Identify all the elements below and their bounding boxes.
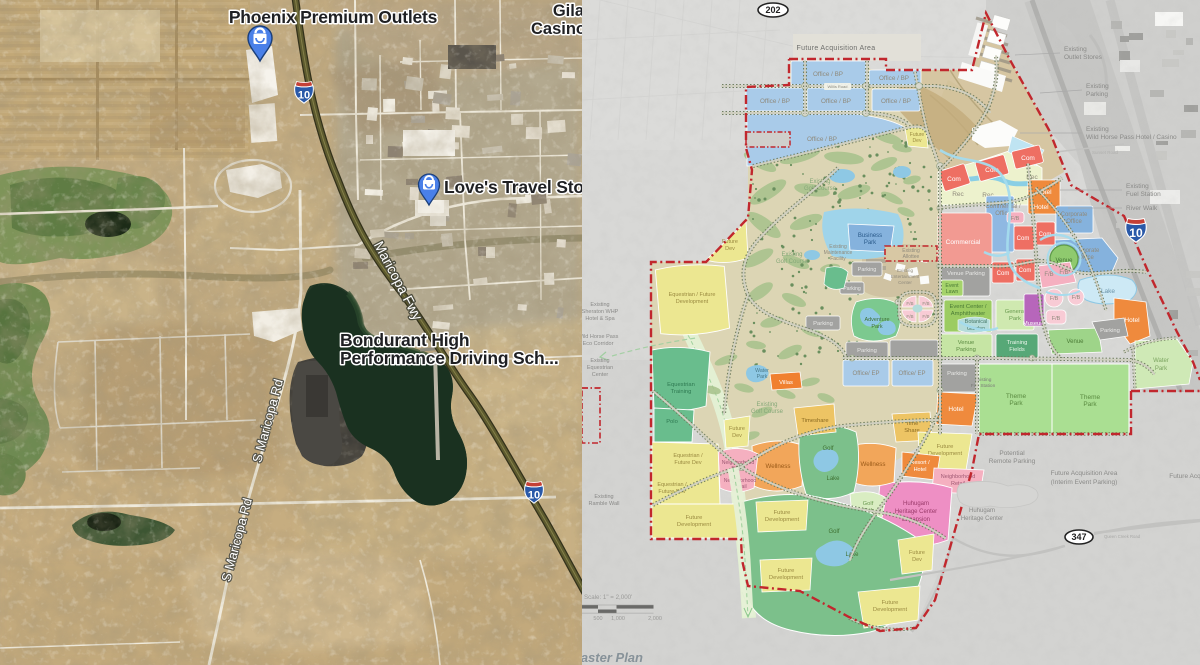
svg-text:Outlet Stores: Outlet Stores — [1064, 54, 1103, 61]
svg-text:Amphitheater: Amphitheater — [951, 311, 986, 317]
svg-text:Park: Park — [1083, 401, 1097, 408]
svg-text:Timeshare: Timeshare — [801, 418, 828, 424]
svg-text:Future: Future — [774, 510, 791, 516]
svg-text:Future: Future — [729, 426, 745, 432]
svg-text:Com: Com — [1021, 155, 1035, 162]
svg-text:Event Center /: Event Center / — [949, 304, 986, 310]
svg-text:Botanical: Botanical — [965, 319, 988, 325]
svg-text:Golf Course: Golf Course — [804, 186, 837, 192]
svg-text:Com: Com — [1017, 236, 1030, 242]
svg-text:Park: Park — [1155, 366, 1168, 372]
svg-text:1,000: 1,000 — [611, 616, 625, 622]
svg-text:General: General — [1005, 309, 1026, 315]
svg-text:Facility: Facility — [830, 256, 846, 262]
svg-text:Center: Center — [898, 280, 912, 285]
svg-text:F/B: F/B — [1044, 272, 1053, 278]
svg-text:Phoenix Premium Outlets: Phoenix Premium Outlets — [229, 7, 438, 27]
svg-text:Com: Com — [947, 176, 961, 183]
svg-text:Scale: 1" = 2,000': Scale: 1" = 2,000' — [584, 594, 632, 601]
svg-text:Huhugam: Huhugam — [969, 508, 995, 514]
svg-text:Existing: Existing — [590, 302, 609, 308]
svg-text:Future: Future — [909, 550, 925, 556]
svg-text:Training: Training — [1007, 340, 1028, 346]
svg-text:Hotel: Hotel — [948, 406, 964, 413]
svg-text:Golf Course: Golf Course — [751, 409, 784, 415]
svg-text:F/B: F/B — [906, 314, 913, 319]
svg-text:Dev: Dev — [913, 138, 922, 144]
svg-text:Office / BP: Office / BP — [813, 71, 843, 78]
svg-text:Performance Driving Sch...: Performance Driving Sch... — [340, 348, 558, 368]
svg-text:Golf Course: Golf Course — [776, 259, 809, 265]
svg-text:Casino: Casino — [531, 20, 586, 38]
svg-text:Park: Park — [1009, 400, 1023, 407]
svg-text:Park: Park — [864, 240, 877, 246]
svg-text:2,000: 2,000 — [648, 616, 662, 622]
svg-text:Lake: Lake — [826, 476, 840, 482]
svg-text:Parking: Parking — [956, 347, 976, 353]
svg-text:Development: Development — [765, 517, 800, 523]
svg-text:Venue Parking: Venue Parking — [947, 271, 985, 277]
svg-text:(Interim Event Parking): (Interim Event Parking) — [1051, 479, 1117, 486]
svg-text:Parking: Parking — [858, 267, 877, 273]
svg-text:F/B: F/B — [922, 301, 929, 306]
svg-text:Adventure: Adventure — [864, 317, 889, 323]
svg-text:Heritage Center: Heritage Center — [961, 516, 1003, 522]
svg-text:F/B: F/B — [906, 301, 913, 306]
svg-text:Ramble Wall: Ramble Wall — [589, 501, 620, 507]
svg-text:Future Acquisition Area: Future Acquisition Area — [1051, 470, 1118, 477]
svg-text:Future Acq: Future Acq — [1169, 473, 1200, 480]
svg-text:Parking: Parking — [857, 348, 877, 354]
svg-text:500: 500 — [593, 616, 602, 622]
svg-text:Development: Development — [873, 607, 908, 613]
svg-text:Hotel: Hotel — [1033, 204, 1049, 211]
svg-text:Wild Horse Pass Hotel / Casino: Wild Horse Pass Hotel / Casino — [1086, 134, 1177, 141]
svg-text:Future: Future — [686, 515, 703, 521]
svg-text:Equestrian / Future: Equestrian / Future — [669, 292, 716, 298]
svg-text:Office / BP: Office / BP — [879, 75, 909, 82]
svg-text:Office/ EP: Office/ EP — [853, 371, 880, 377]
svg-text:Center: Center — [592, 372, 609, 378]
svg-text:Fields: Fields — [1009, 347, 1025, 353]
svg-text:Bondurant High: Bondurant High — [340, 330, 469, 350]
svg-text:Venue: Venue — [1066, 339, 1084, 345]
svg-text:Golf: Golf — [822, 446, 833, 452]
svg-text:Corporate: Corporate — [1061, 212, 1088, 218]
svg-text:Sheraton WHP: Sheraton WHP — [582, 309, 619, 315]
svg-text:Equestrian /: Equestrian / — [673, 453, 703, 459]
svg-text:Existing: Existing — [1086, 83, 1109, 90]
svg-text:River Walk: River Walk — [1126, 205, 1158, 212]
svg-text:Gila: Gila — [553, 2, 585, 20]
svg-text:Allottee: Allottee — [903, 254, 920, 260]
svg-text:Willis Road: Willis Road — [827, 84, 847, 89]
svg-text:Dev: Dev — [912, 557, 922, 563]
svg-text:Future Acquisition Area: Future Acquisition Area — [797, 45, 876, 52]
svg-text:Potential: Potential — [999, 450, 1025, 457]
svg-text:Hotel: Hotel — [1124, 317, 1140, 324]
svg-text:Existing: Existing — [594, 494, 613, 500]
svg-text:Theme: Theme — [1080, 394, 1101, 401]
svg-text:Office: Office — [1066, 219, 1082, 225]
svg-text:Lake: Lake — [1101, 288, 1115, 295]
svg-text:Existing: Existing — [756, 402, 777, 408]
svg-text:Future: Future — [882, 600, 899, 606]
svg-text:Parking: Parking — [813, 321, 833, 327]
svg-text:F/B: F/B — [1072, 295, 1081, 301]
svg-text:Office/ EP: Office/ EP — [899, 371, 926, 377]
svg-text:202: 202 — [765, 5, 780, 15]
svg-text:Wellness: Wellness — [861, 461, 886, 468]
svg-text:Love's Travel Stop: Love's Travel Stop — [444, 177, 594, 197]
svg-text:Office / BP: Office / BP — [881, 98, 911, 105]
svg-text:Water: Water — [1153, 358, 1169, 364]
svg-text:10: 10 — [298, 89, 310, 101]
svg-text:Future: Future — [778, 568, 795, 574]
svg-text:Parking: Parking — [947, 371, 967, 377]
svg-text:Com: Com — [997, 271, 1010, 277]
svg-text:Parking: Parking — [1100, 328, 1120, 334]
svg-text:Parking: Parking — [843, 286, 861, 292]
svg-text:Wild Horse Pass: Wild Horse Pass — [578, 334, 619, 340]
svg-text:F/B: F/B — [1011, 216, 1020, 222]
svg-text:Business: Business — [858, 233, 882, 239]
svg-text:Equestrian: Equestrian — [667, 382, 695, 388]
svg-text:Future: Future — [937, 444, 954, 450]
svg-text:Theme: Theme — [1006, 393, 1027, 400]
svg-text:Development: Development — [676, 299, 709, 305]
svg-text:Hotel: Hotel — [914, 467, 927, 473]
svg-text:Office / BP: Office / BP — [807, 136, 837, 143]
svg-text:Park: Park — [1009, 316, 1021, 322]
svg-text:Fire Station: Fire Station — [971, 383, 996, 389]
svg-text:Park: Park — [757, 374, 768, 380]
svg-text:Commercial: Commercial — [946, 239, 981, 246]
svg-text:Existing: Existing — [1086, 126, 1109, 133]
svg-text:Parking: Parking — [1086, 91, 1108, 98]
svg-text:F/B: F/B — [1052, 316, 1061, 322]
svg-text:Heritage Center: Heritage Center — [895, 509, 937, 515]
svg-text:Existing: Existing — [1126, 183, 1149, 190]
svg-text:10: 10 — [1129, 226, 1143, 240]
svg-text:Dev: Dev — [732, 433, 742, 439]
svg-text:Training: Training — [671, 389, 692, 395]
svg-text:Remote Parking: Remote Parking — [989, 458, 1036, 465]
svg-text:Eco Corridor: Eco Corridor — [583, 341, 614, 347]
svg-text:Rec: Rec — [952, 191, 964, 198]
svg-text:Wellness: Wellness — [766, 463, 791, 470]
svg-text:Queen Creek Road: Queen Creek Road — [1104, 534, 1141, 539]
svg-text:Sunset Road: Sunset Road — [1092, 150, 1119, 155]
svg-text:Development: Development — [769, 575, 804, 581]
svg-text:Venue: Venue — [958, 340, 974, 346]
svg-text:Lawn: Lawn — [946, 289, 959, 295]
svg-text:Existing: Existing — [590, 358, 609, 364]
svg-text:Com: Com — [1019, 268, 1032, 274]
svg-text:Dev: Dev — [725, 246, 735, 252]
svg-text:Polo: Polo — [666, 419, 678, 425]
svg-text:10: 10 — [528, 489, 540, 501]
svg-text:Equestrian /: Equestrian / — [657, 482, 687, 488]
svg-text:Park: Park — [871, 324, 883, 330]
svg-text:Existing: Existing — [781, 252, 802, 258]
svg-text:Development: Development — [677, 522, 712, 528]
svg-text:Existing: Existing — [897, 268, 914, 273]
svg-text:Existing: Existing — [1064, 46, 1087, 53]
svg-text:347: 347 — [1071, 532, 1086, 542]
svg-text:F/B: F/B — [1050, 296, 1059, 302]
svg-text:Office / BP: Office / BP — [760, 98, 790, 105]
svg-text:Hotel & Spa: Hotel & Spa — [585, 316, 615, 322]
svg-text:Future Dev: Future Dev — [674, 460, 701, 466]
svg-text:Fuel Station: Fuel Station — [1126, 191, 1161, 198]
svg-text:Share: Share — [904, 428, 919, 434]
svg-text:Equestrian: Equestrian — [587, 365, 613, 371]
svg-text:Golf: Golf — [863, 501, 874, 507]
svg-text:Entertainment: Entertainment — [891, 274, 920, 279]
svg-text:Huhugam: Huhugam — [903, 501, 929, 507]
svg-text:Villas: Villas — [779, 380, 793, 386]
svg-text:Golf: Golf — [828, 529, 839, 535]
svg-text:F/B: F/B — [922, 314, 929, 319]
svg-text:Office / BP: Office / BP — [821, 98, 851, 105]
